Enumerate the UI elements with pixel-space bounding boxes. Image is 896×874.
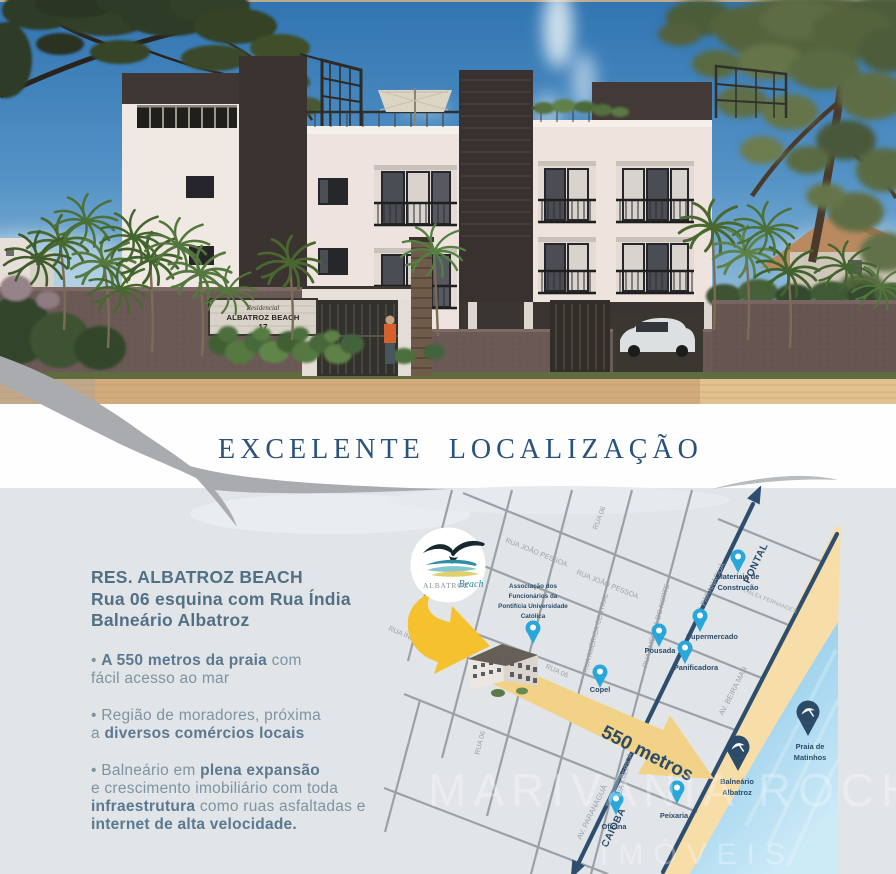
svg-text:Panificadora: Panificadora <box>674 663 719 672</box>
svg-text:Associação dos: Associação dos <box>509 583 557 590</box>
svg-text:Matinhos: Matinhos <box>794 753 826 762</box>
svg-text:Beach: Beach <box>459 579 484 590</box>
svg-text:IMÓVEIS: IMÓVEIS <box>600 838 795 871</box>
svg-text:Funcionários da: Funcionários da <box>509 593 558 600</box>
svg-text:Oficina: Oficina <box>601 822 627 831</box>
svg-text:Pousada: Pousada <box>645 646 677 655</box>
svg-text:ALBATROZ BEACH: ALBATROZ BEACH <box>226 313 299 322</box>
svg-text:Supermercado: Supermercado <box>686 632 738 641</box>
svg-text:Residencial: Residencial <box>246 304 280 312</box>
svg-text:Copel: Copel <box>590 685 611 694</box>
svg-text:Católica: Católica <box>521 613 546 620</box>
svg-text:Pontifícia Universidade: Pontifícia Universidade <box>498 603 568 610</box>
svg-text:MARIVANIA ROCHA: MARIVANIA ROCHA <box>428 764 896 816</box>
svg-text:Materiais de: Materiais de <box>717 572 760 581</box>
svg-text:RUA 06: RUA 06 <box>474 730 487 755</box>
svg-text:Construção: Construção <box>717 583 759 592</box>
svg-text:Praia de: Praia de <box>796 742 825 751</box>
svg-text:RUA AMÉRICA CENTRAL: RUA AMÉRICA CENTRAL <box>580 592 610 674</box>
